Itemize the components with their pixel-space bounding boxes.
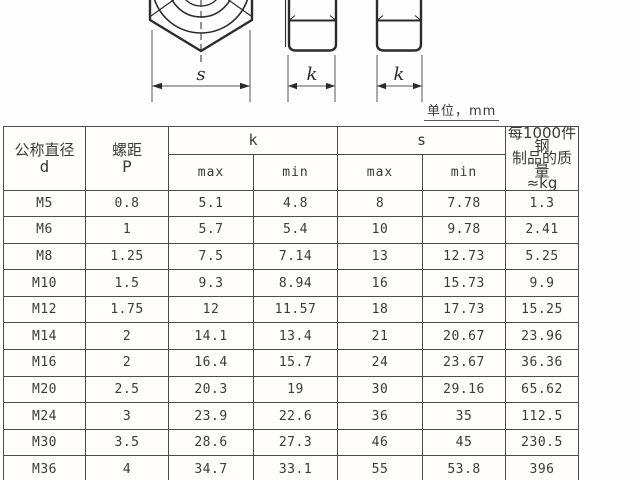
front-view bbox=[150, 0, 252, 62]
cell-k-min: 5.4 bbox=[254, 217, 338, 244]
cell-k-max: 12 bbox=[169, 296, 254, 323]
cell-k-min: 13.4 bbox=[254, 323, 338, 350]
cell-s-min: 35 bbox=[423, 403, 506, 430]
cell-k-min: 27.3 bbox=[254, 429, 338, 456]
cell-s-max: 16 bbox=[338, 270, 423, 297]
table-row: M24323.922.63635112.5 bbox=[4, 403, 579, 430]
cell-s-min: 9.78 bbox=[423, 217, 506, 244]
cell-p: 2 bbox=[86, 350, 169, 377]
cell-k-min: 4.8 bbox=[254, 190, 338, 217]
cell-k-max: 34.7 bbox=[169, 456, 254, 480]
cell-p: 2 bbox=[86, 323, 169, 350]
cell-k-min: 19 bbox=[254, 376, 338, 403]
col-header-k-min: min bbox=[254, 154, 338, 190]
col-header-pitch: 螺距 P bbox=[86, 127, 169, 191]
table-row: M50.85.14.887.781.3 bbox=[4, 190, 579, 217]
cell-weight: 5.25 bbox=[506, 243, 579, 270]
cell-s-min: 29.16 bbox=[423, 376, 506, 403]
cell-p: 0.8 bbox=[86, 190, 169, 217]
cell-s-min: 20.67 bbox=[423, 323, 506, 350]
cell-s-max: 46 bbox=[338, 429, 423, 456]
cell-k-max: 5.7 bbox=[169, 217, 254, 244]
cell-weight: 36.36 bbox=[506, 350, 579, 377]
s-arrow-right bbox=[240, 83, 250, 89]
cell-k-max: 9.3 bbox=[169, 270, 254, 297]
cell-d: M10 bbox=[4, 270, 86, 297]
cell-s-min: 53.8 bbox=[423, 456, 506, 480]
cell-k-min: 11.57 bbox=[254, 296, 338, 323]
cell-p: 1.75 bbox=[86, 296, 169, 323]
col-header-weight-per-1000: 每1000件钢 制品的质量 ≈kg bbox=[506, 127, 579, 191]
cell-k-max: 14.1 bbox=[169, 323, 254, 350]
table-row: M615.75.4109.782.41 bbox=[4, 217, 579, 244]
cell-d: M30 bbox=[4, 429, 86, 456]
cell-weight: 112.5 bbox=[506, 403, 579, 430]
table-row: M202.520.3193029.1665.62 bbox=[4, 376, 579, 403]
pitch-label-cn: 螺距 bbox=[86, 142, 168, 158]
cell-s-max: 55 bbox=[338, 456, 423, 480]
table-row: M36434.733.15553.8396 bbox=[4, 456, 579, 480]
dim-label-s: s bbox=[196, 64, 205, 85]
table-header: 公称直径 d 螺距 P k s 每1000件钢 制品的质量 ≈kg max mi… bbox=[4, 127, 579, 191]
table-row: M81.257.57.141312.735.25 bbox=[4, 243, 579, 270]
cell-p: 1.25 bbox=[86, 243, 169, 270]
header-row-groups: 公称直径 d 螺距 P k s 每1000件钢 制品的质量 ≈kg bbox=[4, 127, 579, 155]
s-arrow-left bbox=[152, 83, 162, 89]
cell-weight: 9.9 bbox=[506, 270, 579, 297]
side2-outline bbox=[377, 0, 421, 51]
cell-s-min: 7.78 bbox=[423, 190, 506, 217]
cell-d: M36 bbox=[4, 456, 86, 480]
cell-k-min: 8.94 bbox=[254, 270, 338, 297]
cell-d: M20 bbox=[4, 376, 86, 403]
cell-d: M16 bbox=[4, 350, 86, 377]
col-header-s-max: max bbox=[338, 154, 423, 190]
side1-outline bbox=[289, 0, 336, 51]
cell-d: M8 bbox=[4, 243, 86, 270]
cell-s-min: 15.73 bbox=[423, 270, 506, 297]
unit-label: 单位，mm bbox=[424, 100, 499, 121]
cell-s-max: 24 bbox=[338, 350, 423, 377]
cell-k-min: 33.1 bbox=[254, 456, 338, 480]
cell-k-max: 23.9 bbox=[169, 403, 254, 430]
cell-s-min: 45 bbox=[423, 429, 506, 456]
table-row: M121.751211.571817.7315.25 bbox=[4, 296, 579, 323]
cell-s-max: 21 bbox=[338, 323, 423, 350]
cell-d: M12 bbox=[4, 296, 86, 323]
table-row: M303.528.627.34645230.5 bbox=[4, 429, 579, 456]
cell-weight: 2.41 bbox=[506, 217, 579, 244]
cell-k-min: 15.7 bbox=[254, 350, 338, 377]
col-header-s-group: s bbox=[338, 127, 506, 155]
cell-p: 1.5 bbox=[86, 270, 169, 297]
hex-nut-technical-drawing: s k k bbox=[0, 0, 640, 108]
nominal-diameter-label-cn: 公称直径 bbox=[4, 142, 85, 158]
cell-weight: 23.96 bbox=[506, 323, 579, 350]
pitch-symbol: P bbox=[86, 158, 168, 175]
cell-s-max: 18 bbox=[338, 296, 423, 323]
table-body: M50.85.14.887.781.3M615.75.4109.782.41M8… bbox=[4, 190, 579, 480]
cell-k-max: 7.5 bbox=[169, 243, 254, 270]
cell-d: M14 bbox=[4, 323, 86, 350]
col-header-k-max: max bbox=[169, 154, 254, 190]
cell-k-min: 22.6 bbox=[254, 403, 338, 430]
spec-sheet-page: s k k 单位，mm 公称直径 d bbox=[0, 0, 640, 480]
cell-s-max: 13 bbox=[338, 243, 423, 270]
k1-arrow-left bbox=[288, 83, 297, 89]
cell-k-max: 16.4 bbox=[169, 350, 254, 377]
cell-s-min: 23.67 bbox=[423, 350, 506, 377]
cell-k-max: 28.6 bbox=[169, 429, 254, 456]
table-row: M101.59.38.941615.739.9 bbox=[4, 270, 579, 297]
col-header-s-min: min bbox=[423, 154, 506, 190]
side-view-1 bbox=[286, 0, 337, 51]
weight-header-line3: ≈kg bbox=[506, 177, 578, 190]
k2-arrow-right bbox=[413, 83, 422, 89]
cell-p: 3.5 bbox=[86, 429, 169, 456]
cell-k-max: 20.3 bbox=[169, 376, 254, 403]
cell-d: M5 bbox=[4, 190, 86, 217]
col-header-k-group: k bbox=[169, 127, 338, 155]
cell-s-min: 17.73 bbox=[423, 296, 506, 323]
cell-k-max: 5.1 bbox=[169, 190, 254, 217]
dim-label-k2: k bbox=[394, 64, 405, 85]
cell-weight: 396 bbox=[506, 456, 579, 480]
cell-p: 3 bbox=[86, 403, 169, 430]
cell-weight: 230.5 bbox=[506, 429, 579, 456]
table-row: M16216.415.72423.6736.36 bbox=[4, 350, 579, 377]
cell-p: 1 bbox=[86, 217, 169, 244]
k1-arrow-right bbox=[326, 83, 335, 89]
cell-s-max: 8 bbox=[338, 190, 423, 217]
table-row: M14214.113.42120.6723.96 bbox=[4, 323, 579, 350]
cell-s-max: 10 bbox=[338, 217, 423, 244]
cell-weight: 1.3 bbox=[506, 190, 579, 217]
k2-arrow-left bbox=[377, 83, 386, 89]
cell-d: M24 bbox=[4, 403, 86, 430]
cell-weight: 15.25 bbox=[506, 296, 579, 323]
cell-p: 2.5 bbox=[86, 376, 169, 403]
col-header-nominal-diameter: 公称直径 d bbox=[4, 127, 86, 191]
cell-k-min: 7.14 bbox=[254, 243, 338, 270]
side-view-2 bbox=[377, 0, 421, 51]
cell-s-max: 36 bbox=[338, 403, 423, 430]
nominal-diameter-symbol: d bbox=[4, 158, 85, 175]
cell-p: 4 bbox=[86, 456, 169, 480]
nut-spec-table: 公称直径 d 螺距 P k s 每1000件钢 制品的质量 ≈kg max mi… bbox=[3, 126, 579, 480]
cell-weight: 65.62 bbox=[506, 376, 579, 403]
cell-d: M6 bbox=[4, 217, 86, 244]
dim-label-k1: k bbox=[307, 64, 318, 85]
cell-s-max: 30 bbox=[338, 376, 423, 403]
cell-s-min: 12.73 bbox=[423, 243, 506, 270]
